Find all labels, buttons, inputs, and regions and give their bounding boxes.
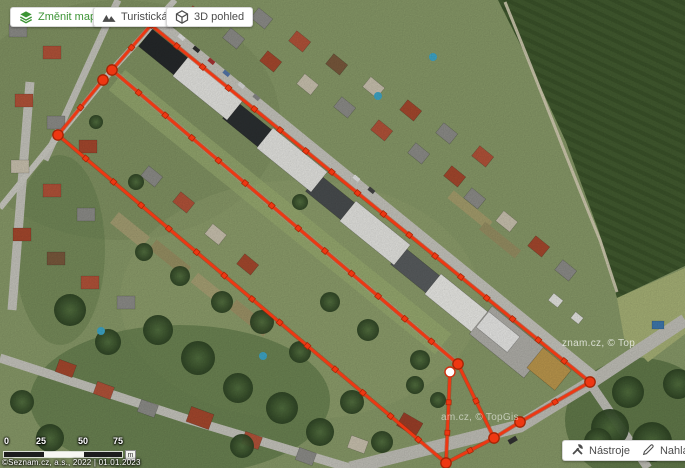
imagery-watermark: am.cz, © TopGis bbox=[441, 412, 519, 423]
tools-menu-item[interactable]: Nástroje bbox=[571, 443, 630, 459]
route-segment[interactable] bbox=[151, 25, 590, 382]
route-vertex[interactable] bbox=[98, 75, 108, 85]
route-vertex[interactable] bbox=[453, 359, 463, 369]
route-start-vertex[interactable] bbox=[445, 367, 455, 377]
route-tick[interactable] bbox=[445, 430, 450, 435]
route-tick[interactable] bbox=[446, 400, 451, 405]
imagery-watermark: znam.cz, © Top bbox=[562, 338, 635, 349]
tourist-layer-label: Turistická bbox=[121, 11, 168, 23]
route-vertex[interactable] bbox=[489, 433, 499, 443]
scale-tick-75: 75 bbox=[113, 436, 123, 446]
cube-icon bbox=[175, 10, 189, 24]
map-attribution: ©Seznam.cz, a.s., 2022 | 01.01.2023 bbox=[2, 458, 141, 467]
scale-tick-50: 50 bbox=[78, 436, 88, 446]
layers-icon bbox=[19, 10, 33, 24]
scale-bar bbox=[4, 452, 122, 457]
report-error-label: Nahlásit chybu bbox=[660, 445, 685, 457]
pencil-icon bbox=[642, 443, 655, 459]
scale-tick-25: 25 bbox=[36, 436, 46, 446]
map-canvas[interactable]: znam.cz, © Top am.cz, © TopGis Změnit ma… bbox=[0, 0, 685, 468]
tools-label: Nástroje bbox=[589, 445, 630, 457]
route-vertex[interactable] bbox=[441, 458, 451, 468]
scale-tick-0: 0 bbox=[4, 436, 9, 446]
route-vertex[interactable] bbox=[53, 130, 63, 140]
route-vertex[interactable] bbox=[107, 65, 117, 75]
route-vertex[interactable] bbox=[585, 377, 595, 387]
3d-view-label: 3D pohled bbox=[194, 11, 244, 23]
mountains-icon bbox=[102, 10, 116, 24]
report-error-item[interactable]: Nahlásit chybu bbox=[642, 443, 685, 459]
tourist-layer-button[interactable]: Turistická bbox=[93, 7, 177, 27]
route-overlay[interactable] bbox=[0, 0, 685, 468]
3d-view-button[interactable]: 3D pohled bbox=[166, 7, 253, 27]
tools-icon bbox=[571, 443, 584, 459]
bottom-toolbar: Nástroje Nahlásit chybu bbox=[562, 440, 685, 461]
